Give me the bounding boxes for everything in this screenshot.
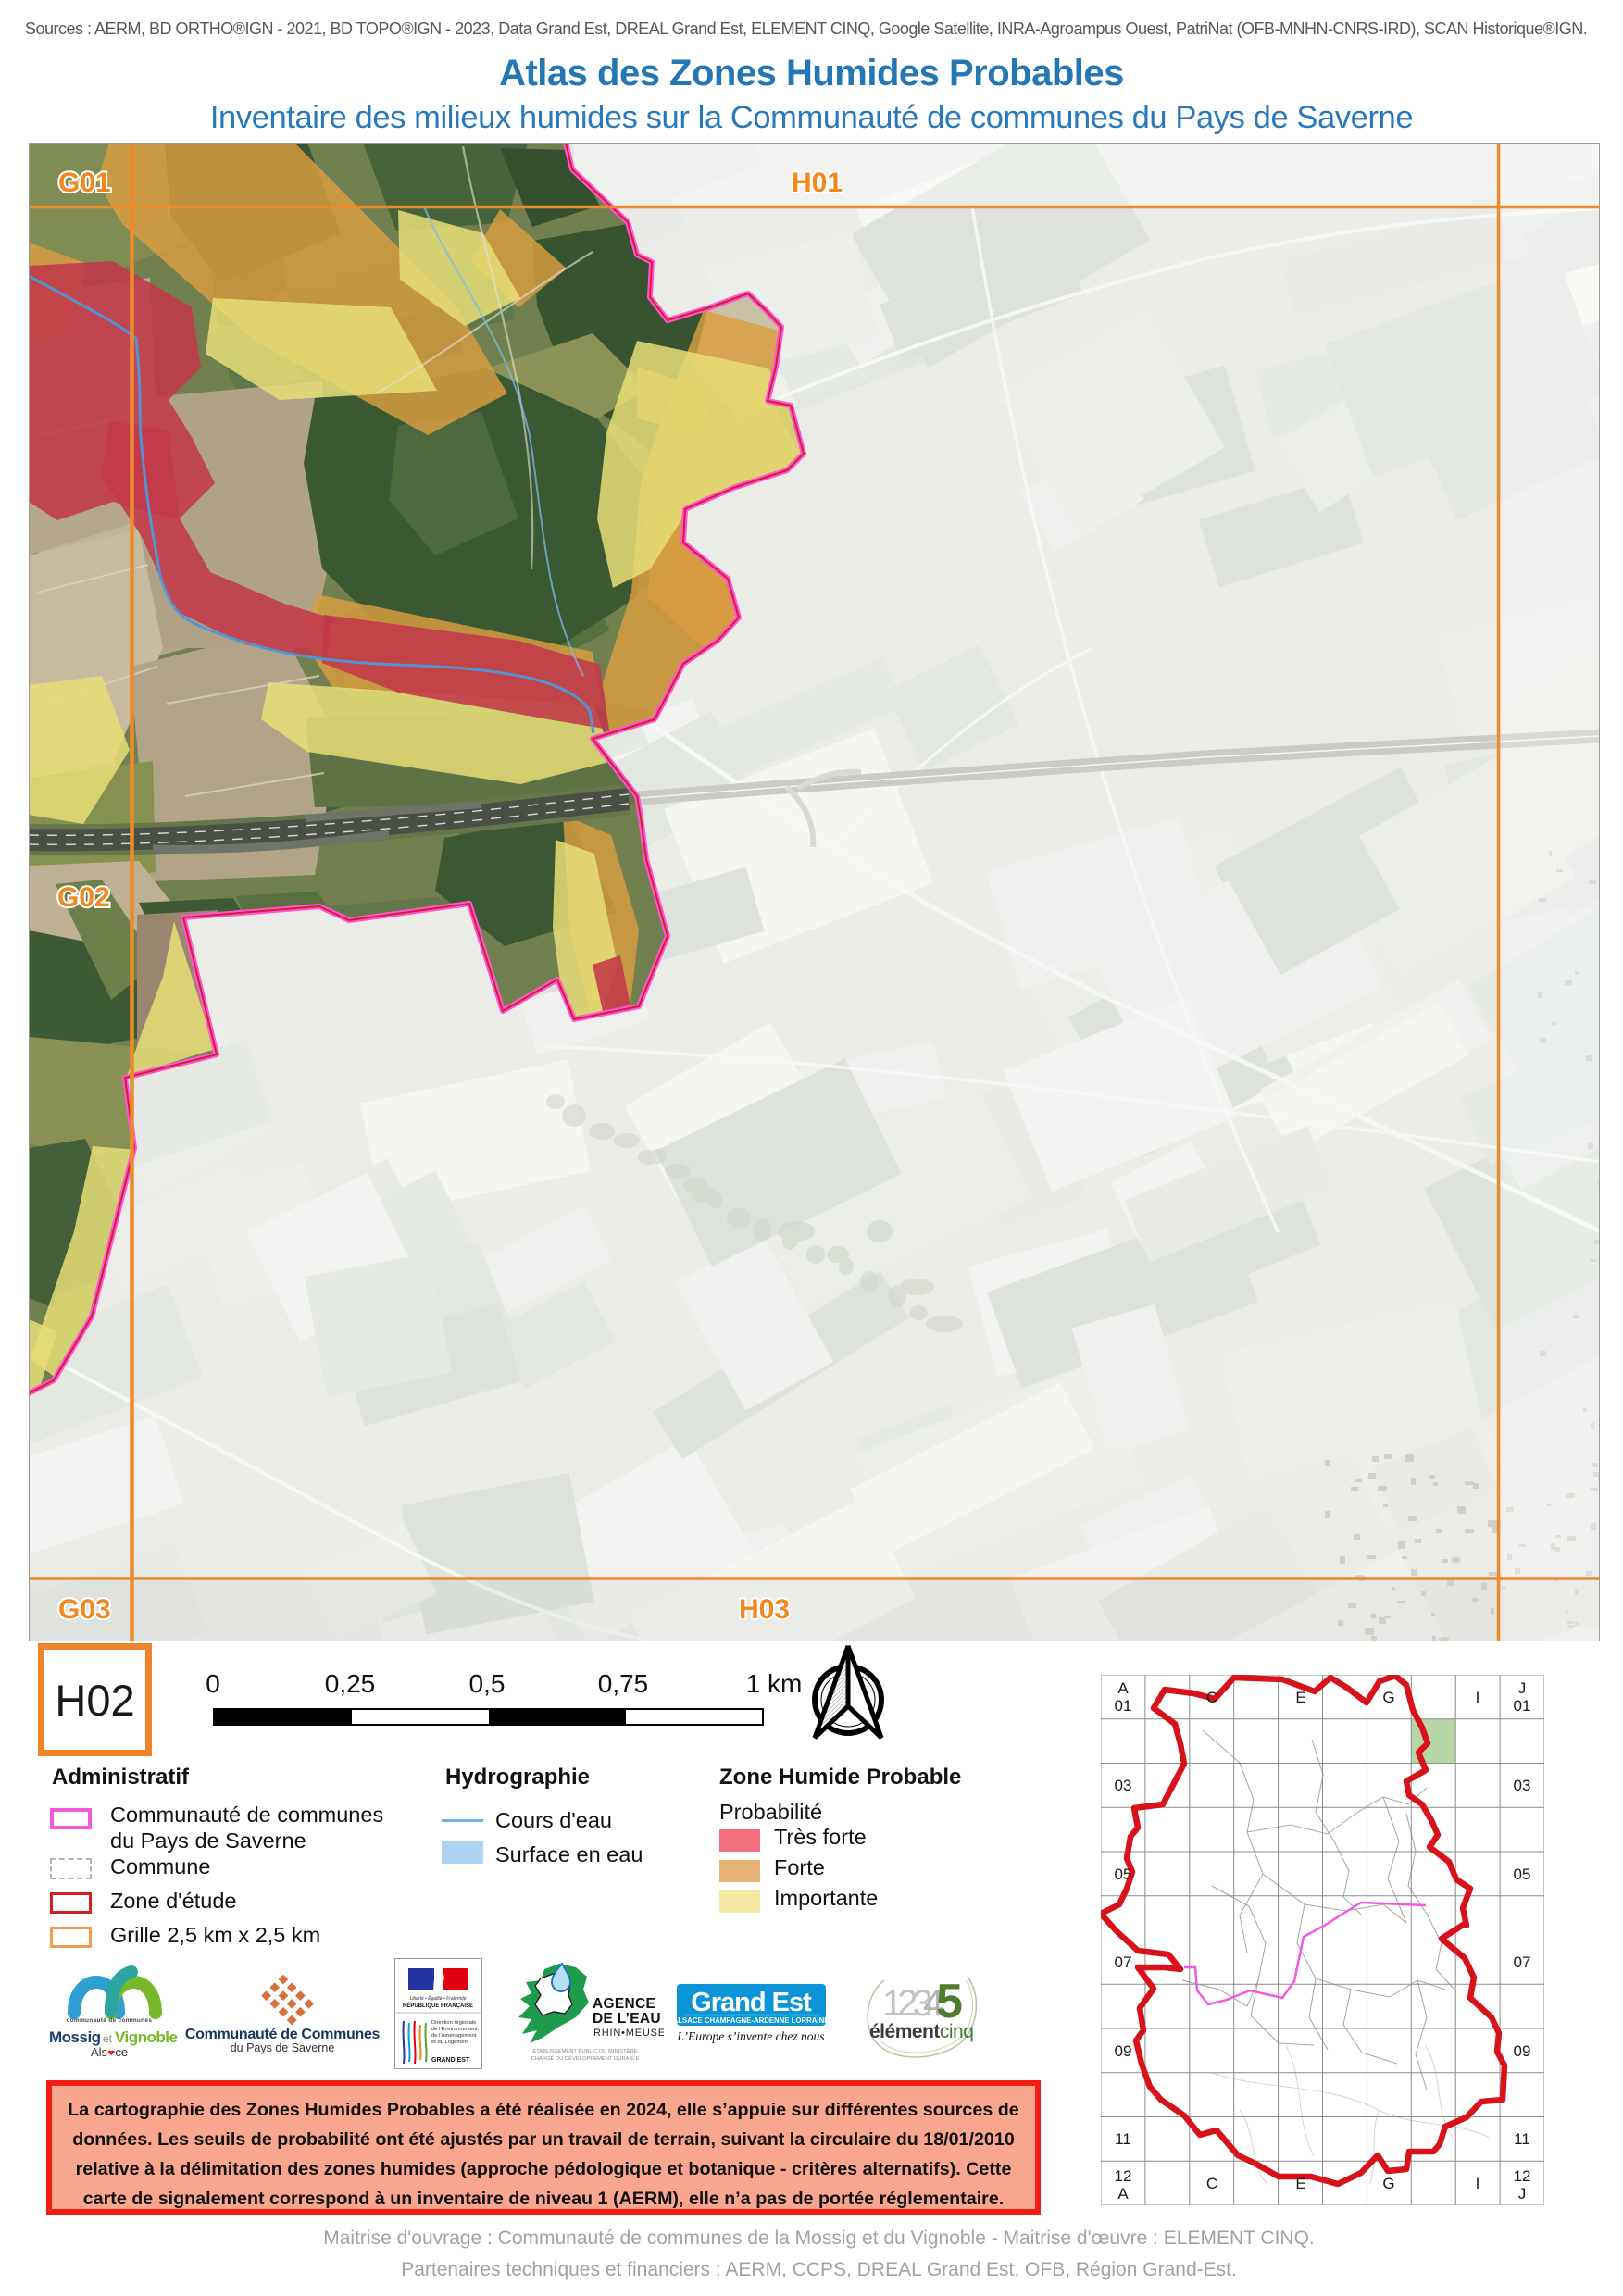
svg-text:Vignoble: Vignoble bbox=[115, 2028, 178, 2046]
svg-text:03: 03 bbox=[1115, 1777, 1132, 1794]
svg-text:E: E bbox=[1295, 2175, 1305, 2192]
svg-text:03: 03 bbox=[1514, 1777, 1531, 1794]
svg-text:DE L’EAU: DE L’EAU bbox=[593, 2011, 661, 2027]
svg-text:09: 09 bbox=[1514, 2042, 1531, 2060]
svg-text:I: I bbox=[1476, 2175, 1480, 2192]
svg-text:Liberté • Égalité • Fraternité: Liberté • Égalité • Fraternité bbox=[409, 1995, 466, 2002]
svg-text:ÉTABLISSEMENT PUBLIC DU MINIST: ÉTABLISSEMENT PUBLIC DU MINISTÈRE bbox=[532, 2048, 637, 2054]
svg-text:Direction régionale: Direction régionale bbox=[431, 2020, 476, 2026]
svg-text:communauté de communes: communauté de communes bbox=[67, 2017, 153, 2024]
svg-text:I: I bbox=[1476, 1689, 1480, 1706]
svg-text:Als❤ce: Als❤ce bbox=[91, 2045, 128, 2059]
svg-text:G03: G03 bbox=[58, 1594, 111, 1625]
svg-text:07: 07 bbox=[1115, 1953, 1132, 1971]
svg-text:GRAND EST: GRAND EST bbox=[431, 2057, 470, 2064]
svg-text:et du Logement: et du Logement bbox=[431, 2040, 469, 2045]
svg-text:H03: H03 bbox=[739, 1594, 790, 1625]
svg-text:11: 11 bbox=[1115, 2130, 1131, 2148]
svg-text:ALSACE CHAMPAGNE-ARDENNE LORRA: ALSACE CHAMPAGNE-ARDENNE LORRAINE bbox=[677, 2016, 827, 2025]
svg-text:RÉPUBLIQUE FRANÇAISE: RÉPUBLIQUE FRANÇAISE bbox=[403, 2002, 473, 2009]
svg-text:Grand Est: Grand Est bbox=[691, 1988, 812, 2017]
svg-text:H01: H01 bbox=[792, 168, 843, 198]
svg-text:Mossig: Mossig bbox=[49, 2028, 101, 2046]
svg-text:G02: G02 bbox=[57, 882, 110, 913]
svg-text:RHIN•MEUSE: RHIN•MEUSE bbox=[593, 2028, 664, 2039]
svg-text:élémentcinq: élémentcinq bbox=[869, 2021, 973, 2042]
svg-text:E: E bbox=[1295, 1689, 1305, 1706]
svg-text:C: C bbox=[1206, 1689, 1217, 1706]
svg-text:05: 05 bbox=[1514, 1865, 1531, 1883]
svg-text:05: 05 bbox=[1115, 1865, 1132, 1883]
svg-text:et: et bbox=[103, 2032, 113, 2045]
svg-text:G01: G01 bbox=[58, 168, 111, 198]
svg-text:de l’Environnement,: de l’Environnement, bbox=[431, 2027, 480, 2032]
svg-text:du Pays de Saverne: du Pays de Saverne bbox=[231, 2041, 335, 2054]
svg-text:AGENCE: AGENCE bbox=[593, 1996, 655, 2012]
svg-text:07: 07 bbox=[1514, 1953, 1531, 1971]
svg-text:Communauté de Communes: Communauté de Communes bbox=[185, 2027, 381, 2042]
svg-text:G: G bbox=[1382, 1689, 1394, 1706]
svg-text:de l’Aménagement: de l’Aménagement bbox=[431, 2033, 477, 2039]
svg-text:C: C bbox=[1206, 2175, 1217, 2192]
svg-text:G: G bbox=[1382, 2175, 1394, 2192]
svg-text:CHARGÉ DU DÉVELOPPEMENT DURABL: CHARGÉ DU DÉVELOPPEMENT DURABLE bbox=[531, 2055, 640, 2062]
svg-text:09: 09 bbox=[1115, 2042, 1132, 2060]
svg-text:L’Europe s’invente chez nous: L’Europe s’invente chez nous bbox=[677, 2029, 825, 2043]
svg-text:11: 11 bbox=[1514, 2130, 1530, 2148]
